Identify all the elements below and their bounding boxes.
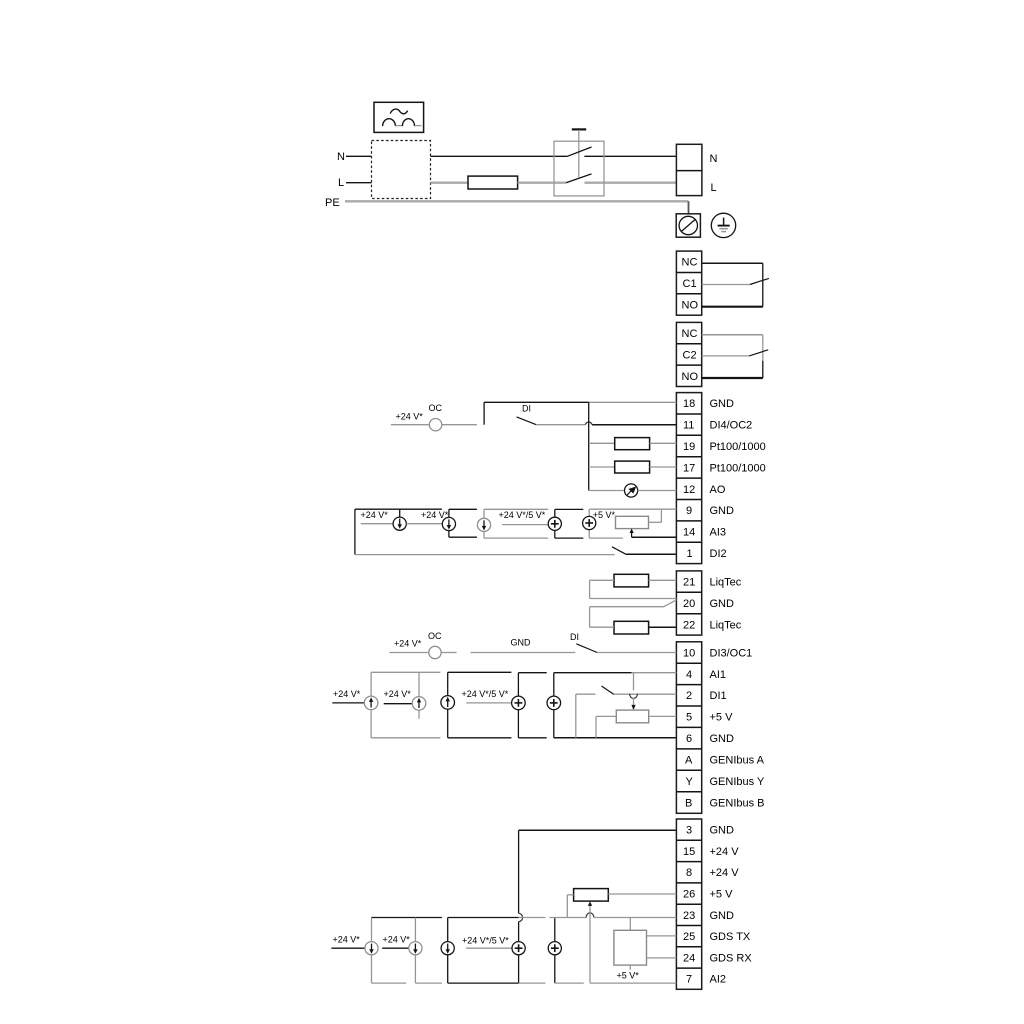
svg-text:N: N — [337, 151, 345, 163]
svg-text:+24 V*/5 V*: +24 V*/5 V* — [462, 936, 509, 946]
svg-text:NC: NC — [682, 328, 698, 340]
svg-text:25: 25 — [683, 931, 695, 943]
svg-text:2: 2 — [686, 690, 692, 702]
svg-text:B: B — [685, 797, 692, 809]
svg-text:+24 V*: +24 V* — [383, 935, 411, 945]
svg-text:+24 V: +24 V — [710, 867, 740, 879]
svg-text:N: N — [710, 153, 718, 165]
svg-text:GENIbus Y: GENIbus Y — [710, 776, 765, 788]
svg-text:+24 V*/5 V*: +24 V*/5 V* — [462, 689, 509, 699]
svg-text:AI1: AI1 — [710, 669, 727, 681]
svg-text:Pt100/1000: Pt100/1000 — [710, 441, 766, 453]
svg-text:23: 23 — [683, 910, 695, 922]
svg-text:A: A — [685, 755, 693, 767]
svg-text:DI: DI — [522, 404, 531, 414]
svg-text:DI2: DI2 — [710, 548, 727, 560]
svg-text:1: 1 — [687, 548, 693, 560]
svg-text:3: 3 — [686, 825, 692, 837]
svg-text:+24 V*: +24 V* — [396, 412, 424, 422]
svg-text:20: 20 — [683, 598, 695, 610]
svg-text:+5 V*: +5 V* — [593, 510, 616, 520]
svg-text:GND: GND — [710, 910, 735, 922]
svg-text:+5 V: +5 V — [710, 889, 734, 901]
svg-text:OC: OC — [428, 631, 442, 641]
svg-text:LiqTec: LiqTec — [710, 577, 742, 589]
svg-text:15: 15 — [683, 846, 695, 858]
svg-text:GND: GND — [710, 733, 735, 745]
svg-text:GDS RX: GDS RX — [710, 952, 753, 964]
svg-text:PE: PE — [325, 197, 340, 209]
svg-text:19: 19 — [683, 441, 695, 453]
svg-text:Y: Y — [686, 776, 694, 788]
svg-text:24: 24 — [683, 952, 695, 964]
svg-text:7: 7 — [686, 974, 692, 986]
svg-text:OC: OC — [429, 403, 443, 413]
svg-text:9: 9 — [686, 505, 692, 517]
svg-text:+24 V*: +24 V* — [361, 510, 389, 520]
svg-text:AO: AO — [710, 484, 726, 496]
svg-text:AI2: AI2 — [710, 974, 727, 986]
svg-text:GND: GND — [710, 398, 735, 410]
svg-text:26: 26 — [683, 889, 695, 901]
svg-text:14: 14 — [683, 527, 695, 539]
svg-text:10: 10 — [683, 647, 695, 659]
svg-text:GND: GND — [511, 638, 532, 648]
svg-text:11: 11 — [683, 420, 694, 432]
svg-text:12: 12 — [683, 484, 695, 496]
svg-text:GND: GND — [710, 598, 735, 610]
svg-text:GND: GND — [710, 505, 735, 517]
svg-text:21: 21 — [683, 577, 695, 589]
svg-text:+24 V*: +24 V* — [333, 935, 361, 945]
svg-text:DI1: DI1 — [710, 690, 727, 702]
svg-text:LiqTec: LiqTec — [710, 619, 742, 631]
svg-text:18: 18 — [683, 398, 695, 410]
svg-text:NC: NC — [682, 257, 698, 269]
svg-text:C1: C1 — [683, 278, 697, 290]
svg-text:5: 5 — [686, 712, 692, 724]
svg-text:4: 4 — [686, 669, 692, 681]
svg-text:GND: GND — [710, 825, 735, 837]
svg-text:+5 V*: +5 V* — [617, 971, 640, 981]
svg-text:+24 V*: +24 V* — [394, 639, 422, 649]
svg-text:6: 6 — [686, 733, 692, 745]
svg-text:17: 17 — [683, 462, 695, 474]
svg-text:C2: C2 — [683, 349, 697, 361]
svg-text:NO: NO — [682, 300, 699, 312]
svg-text:GDS TX: GDS TX — [710, 931, 751, 943]
svg-text:DI4/OC2: DI4/OC2 — [710, 420, 753, 432]
svg-text:L: L — [338, 177, 344, 189]
svg-text:AI3: AI3 — [710, 527, 727, 539]
svg-text:+24 V: +24 V — [710, 846, 740, 858]
svg-text:L: L — [711, 182, 717, 194]
svg-text:22: 22 — [683, 619, 695, 631]
svg-text:GENIbus A: GENIbus A — [710, 755, 765, 767]
svg-text:NO: NO — [682, 371, 699, 383]
svg-text:8: 8 — [686, 867, 692, 879]
svg-text:Pt100/1000: Pt100/1000 — [710, 462, 766, 474]
svg-text:+5 V: +5 V — [710, 712, 734, 724]
svg-text:+24 V*: +24 V* — [333, 689, 361, 699]
svg-text:DI: DI — [570, 632, 579, 642]
svg-text:+24 V*: +24 V* — [384, 689, 412, 699]
svg-text:GENIbus B: GENIbus B — [710, 797, 765, 809]
svg-text:DI3/OC1: DI3/OC1 — [710, 647, 753, 659]
svg-text:+24 V*/5 V*: +24 V*/5 V* — [499, 510, 546, 520]
